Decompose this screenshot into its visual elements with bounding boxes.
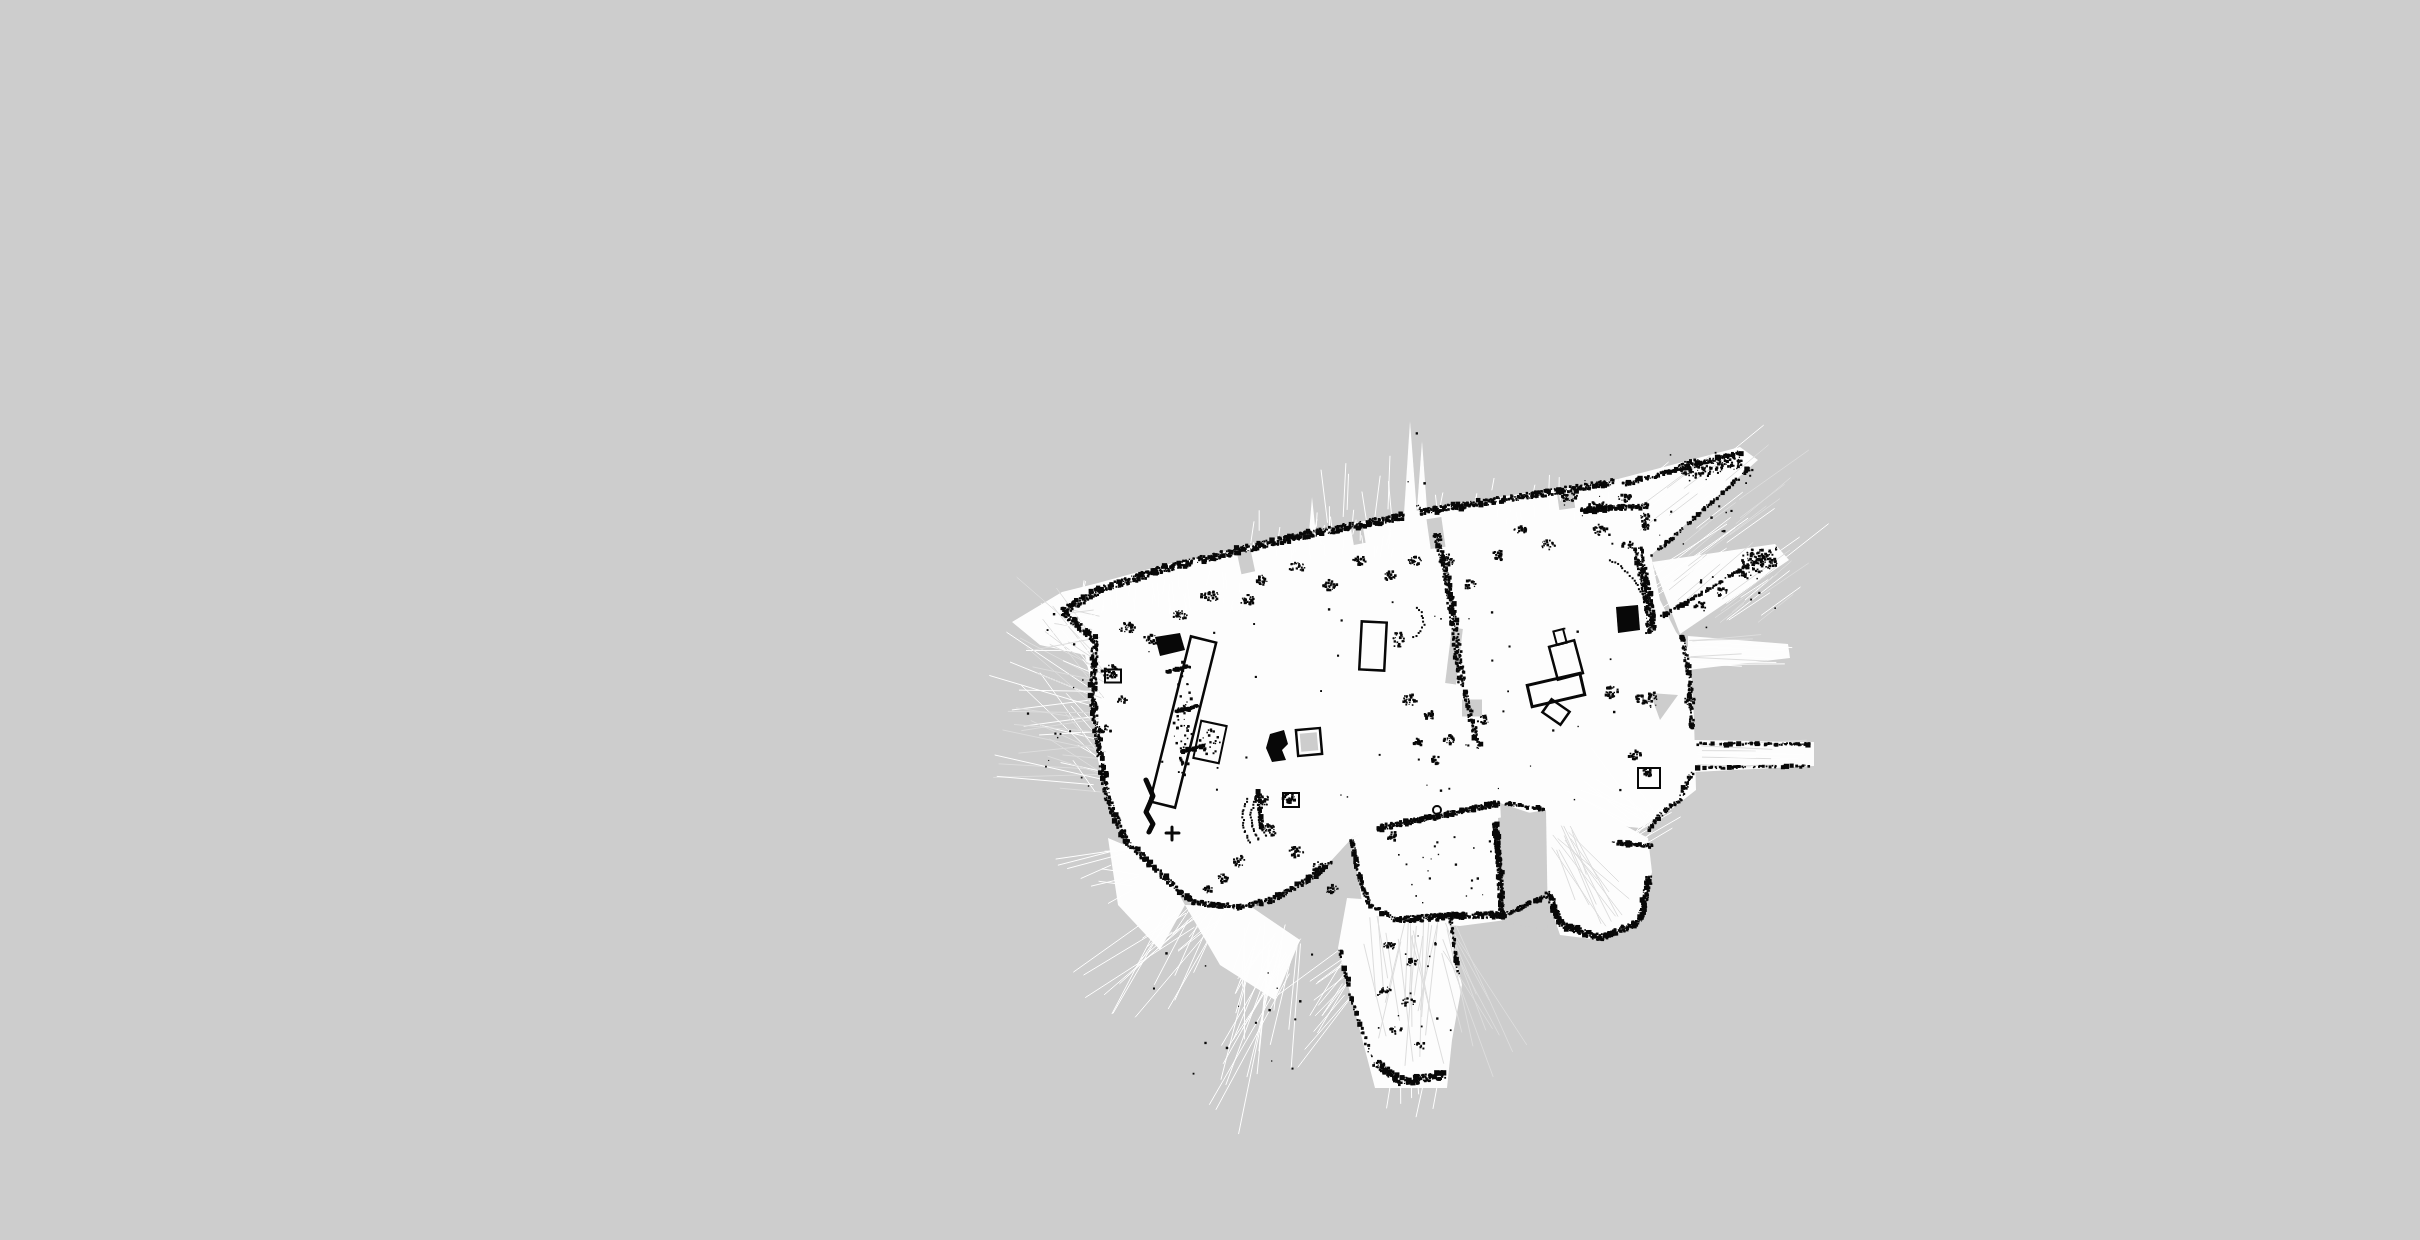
map-viewport [0,0,2420,1240]
occupancy-grid-map-canvas [0,0,2420,1240]
